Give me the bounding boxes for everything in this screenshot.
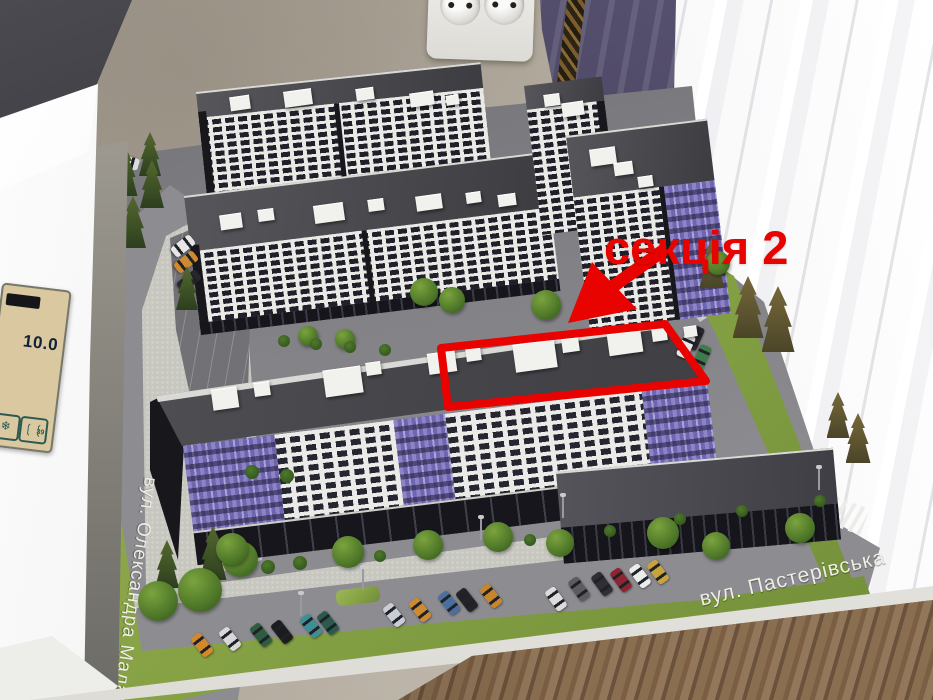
rooftop-structure [561,101,585,118]
rooftop-structure [409,90,435,107]
deciduous-tree [483,522,513,552]
car [218,626,242,652]
deciduous-tree [785,513,815,543]
deciduous-tree [439,287,465,313]
rooftop-structure [355,87,374,101]
rooftop-structure [613,161,634,177]
rooftop-structure [651,327,668,342]
rooftop-structure [257,208,275,222]
rooftop-structure [512,339,557,373]
rooftop-structure [637,175,653,188]
architectural-model: вул. Олександра Маламужа вул. Пастерівсь… [0,0,933,700]
rooftop-structure [683,325,697,338]
rooftop-structure [543,93,561,107]
car [567,576,591,602]
rooftop-structure [253,381,271,397]
car [479,583,503,609]
label-bar [6,293,41,309]
model-scenery [0,0,933,700]
photo-scene: вул. Олександра Маламужа вул. Пастерівсь… [0,0,933,700]
bush [293,556,307,570]
street-lamp [562,496,564,518]
annotation-text: секція 2 [604,220,788,275]
bush [604,525,616,537]
rooftop-structure [561,337,580,353]
street-lamp [362,568,364,590]
bush [524,534,536,546]
deciduous-tree [413,530,443,560]
street-lamp [480,518,482,540]
bush [736,505,748,517]
conifer-tree [733,276,764,338]
conifer-tree [762,286,795,352]
deciduous-tree [546,529,574,557]
bush [814,495,826,507]
bush [310,338,322,350]
conifer-tree [827,392,850,438]
rooftop-structure [415,193,443,211]
deciduous-tree [410,278,438,306]
bush [245,465,259,479]
rooftop-structure [219,213,243,231]
rooftop-structure [465,347,482,362]
bush [674,513,686,525]
rooftop-structure [211,386,240,410]
car [544,586,568,612]
bush [344,341,356,353]
bush [261,560,275,574]
label-value: 10.0 [22,331,59,355]
noise-level-icon: ❲❲39 [18,416,49,445]
bush [280,469,294,483]
rooftop-structure [497,193,516,207]
deciduous-tree [138,581,178,621]
deciduous-tree [531,290,561,320]
car [408,597,432,623]
car [249,622,273,648]
car [190,632,214,658]
rooftop-structure [322,365,363,397]
street-lamp [818,468,820,490]
rooftop-structure [367,198,385,212]
deciduous-tree [216,533,248,565]
rooftop-structure [427,350,458,375]
rooftop-structure [445,94,459,106]
rooftop-structure [365,361,382,376]
conifer-tree [846,413,871,463]
car [382,602,406,628]
deciduous-tree [178,568,222,612]
street-lamp [300,594,302,616]
rooftop-structure [229,95,251,112]
car [270,619,294,645]
bush [379,344,391,356]
deciduous-tree [332,536,364,568]
rooftop-structure [607,330,644,357]
deciduous-tree [702,532,730,560]
rooftop-structure [283,88,313,108]
bush [374,550,386,562]
rooftop-structure [465,191,481,204]
rooftop-structure [313,202,345,224]
bush [278,335,290,347]
